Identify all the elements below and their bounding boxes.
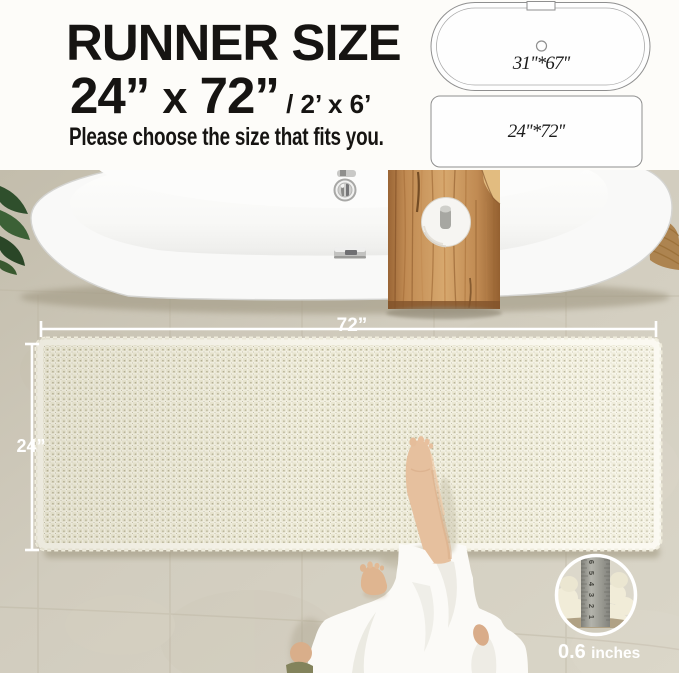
svg-text:31''*67'': 31''*67'' [512, 53, 571, 74]
svg-text:3: 3 [587, 593, 596, 597]
svg-text:5: 5 [587, 571, 596, 575]
svg-text:0.6 inches: 0.6 inches [558, 641, 640, 663]
svg-text:24''*72'': 24''*72'' [508, 121, 566, 142]
svg-text:2: 2 [587, 604, 596, 608]
svg-text:24”: 24” [16, 436, 45, 456]
svg-text:6: 6 [587, 560, 596, 564]
svg-text:1: 1 [587, 615, 596, 619]
svg-text:72”: 72” [337, 315, 368, 336]
